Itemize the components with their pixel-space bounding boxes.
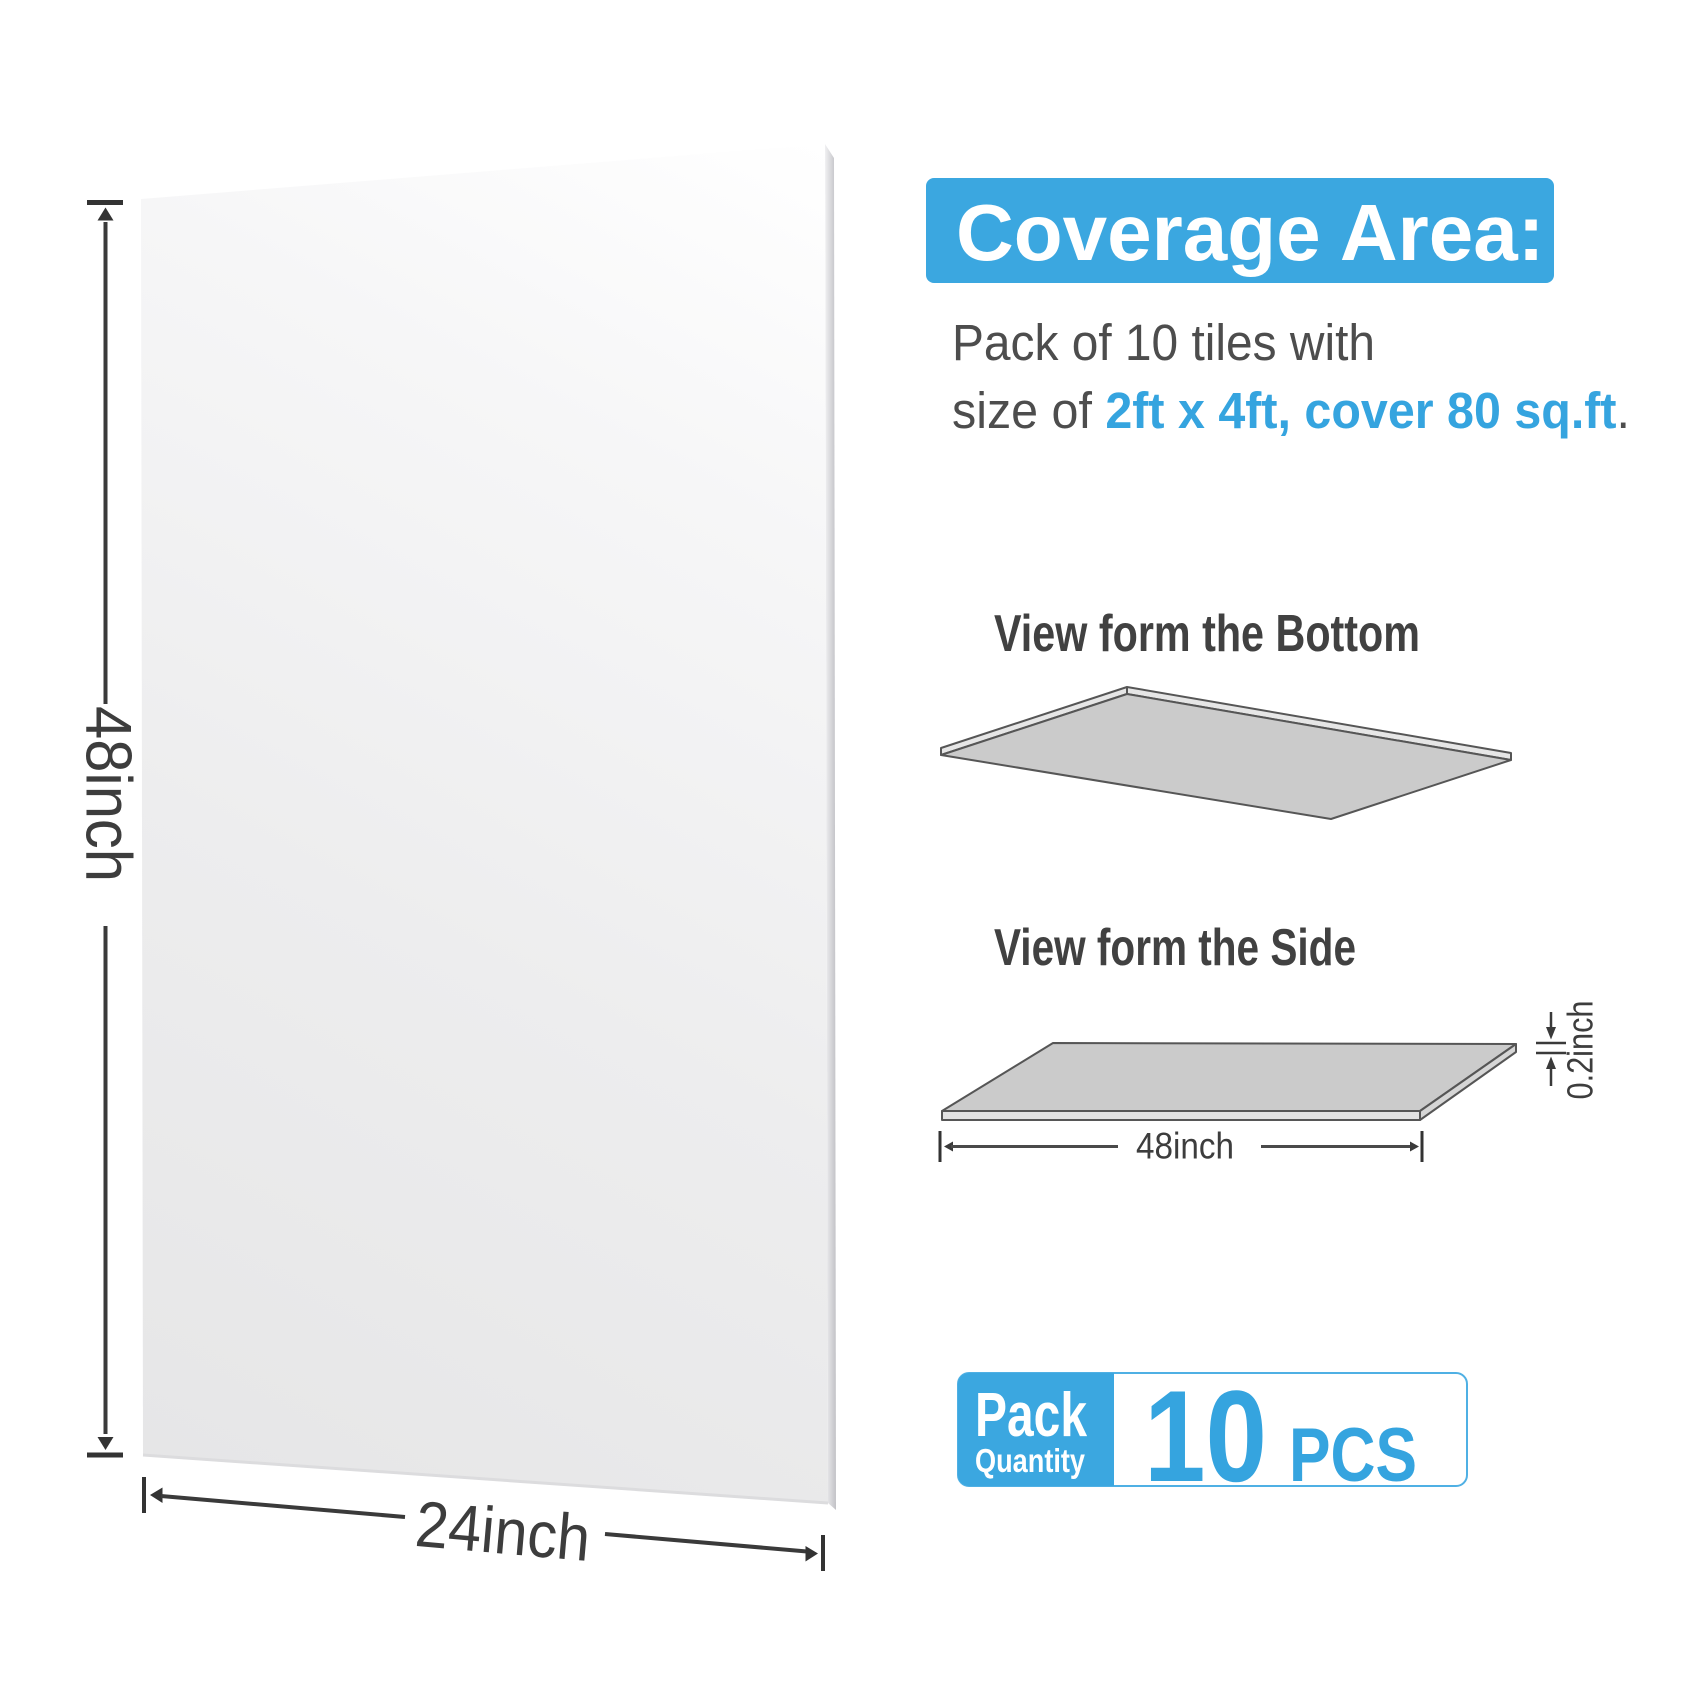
- svg-text:Pack of 10 tiles with: Pack of 10 tiles with: [952, 314, 1375, 371]
- svg-text:PCS: PCS: [1289, 1413, 1417, 1498]
- svg-text:Pack: Pack: [975, 1381, 1087, 1450]
- svg-text:size of 2ft x 4ft, cover 80 sq: size of 2ft x 4ft, cover 80 sq.ft.: [952, 382, 1630, 439]
- svg-text:View form the Side: View form the Side: [994, 919, 1356, 977]
- svg-text:View form the Bottom: View form the Bottom: [994, 605, 1420, 663]
- svg-text:Coverage Area:: Coverage Area:: [956, 188, 1544, 277]
- svg-text:0.2inch: 0.2inch: [1560, 1001, 1601, 1100]
- svg-text:48inch: 48inch: [1136, 1126, 1234, 1167]
- svg-text:48inch: 48inch: [73, 706, 146, 882]
- svg-text:Quantity: Quantity: [975, 1442, 1086, 1479]
- svg-text:24inch: 24inch: [413, 1487, 594, 1575]
- svg-text:10: 10: [1144, 1363, 1267, 1509]
